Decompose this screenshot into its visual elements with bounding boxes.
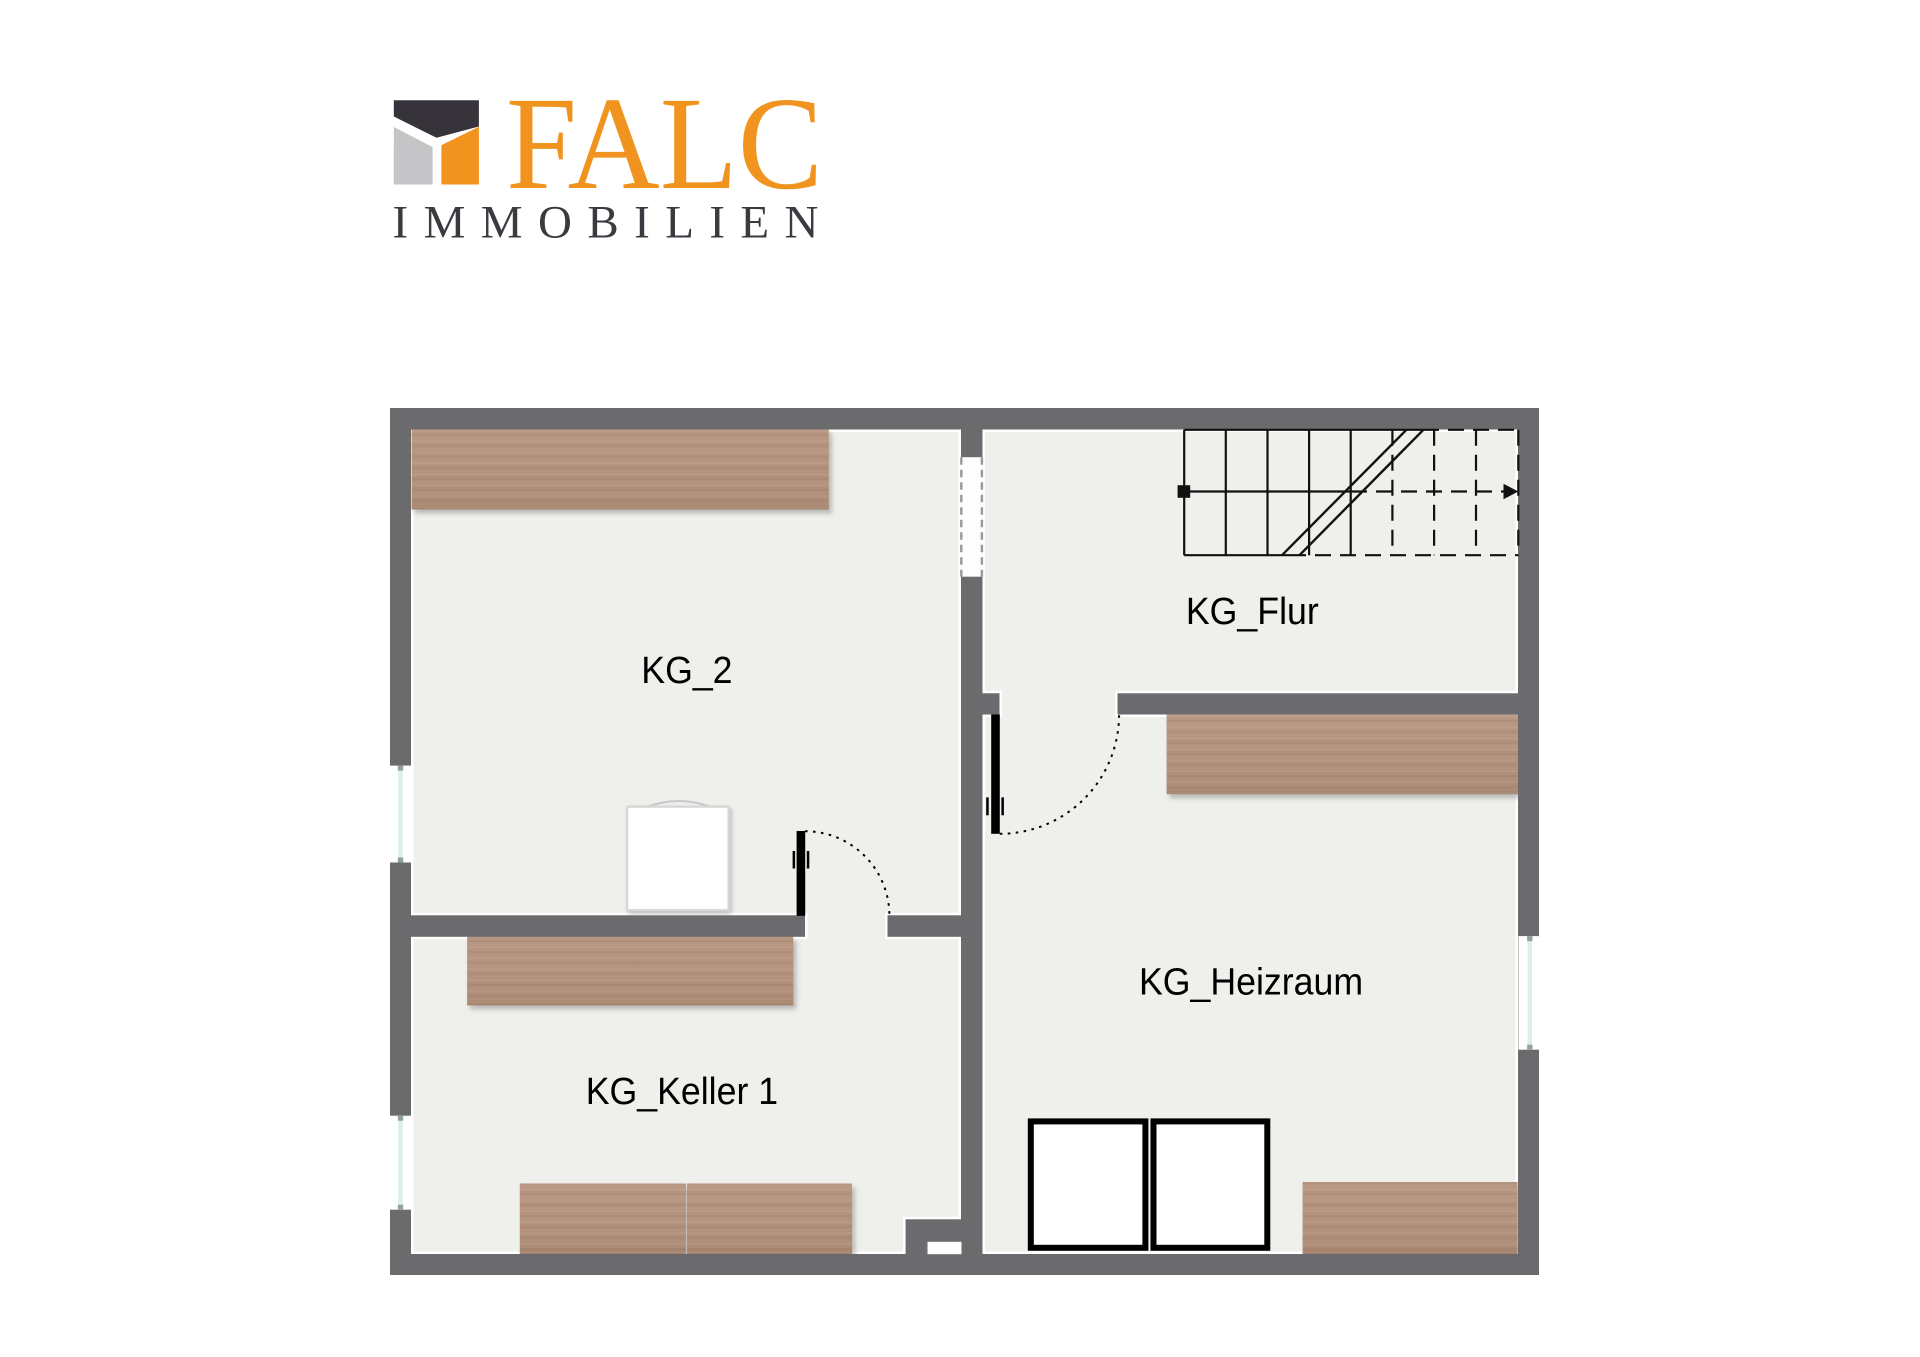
svg-text:KG_Flur: KG_Flur	[1186, 589, 1319, 632]
svg-text:KG_Heizraum: KG_Heizraum	[1139, 960, 1363, 1003]
svg-text:FALC: FALC	[506, 69, 823, 217]
svg-text:KG_2: KG_2	[641, 648, 732, 691]
svg-text:KG_Keller 1: KG_Keller 1	[586, 1069, 778, 1112]
svg-text:IMMOBILIEN: IMMOBILIEN	[393, 197, 819, 249]
